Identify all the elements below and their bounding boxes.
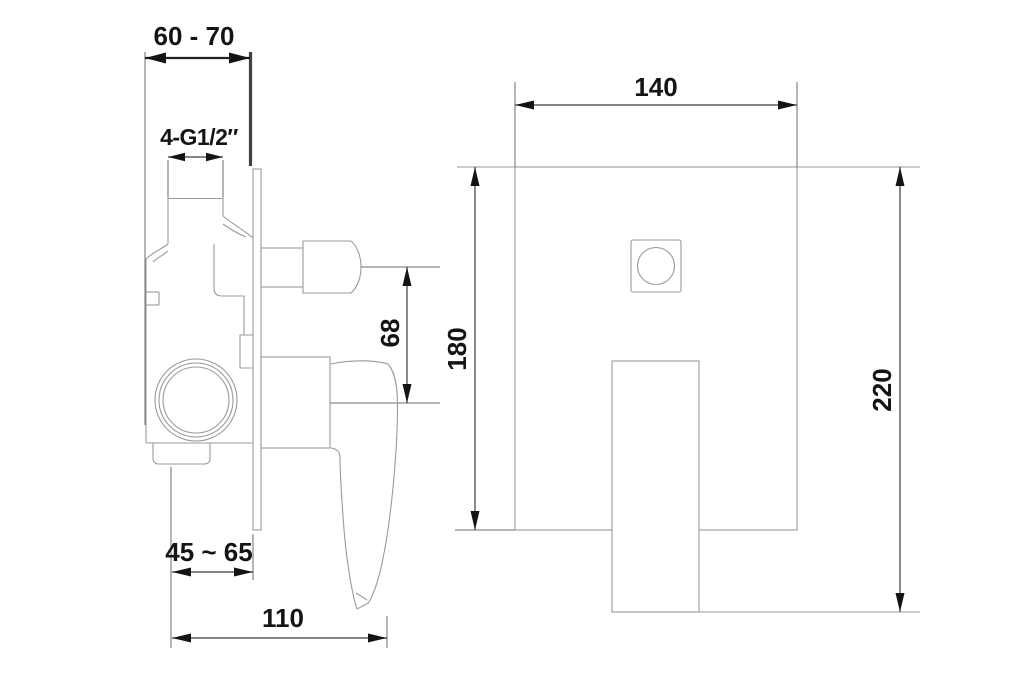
arrowhead bbox=[368, 634, 387, 643]
cartridge-cap-inner bbox=[163, 367, 229, 433]
dim-handle-projection: 110 bbox=[172, 603, 387, 648]
dim-thread: 4-G1/2″ bbox=[160, 124, 238, 197]
body-internal-port bbox=[214, 244, 244, 335]
dim-label-plate-height: 180 bbox=[442, 327, 472, 370]
dim-overall-height: 220 bbox=[867, 167, 905, 612]
handle-lever bbox=[331, 361, 398, 609]
valve-body bbox=[146, 244, 253, 464]
dim-plate-width: 140 bbox=[515, 72, 797, 167]
inlet-pipe bbox=[146, 197, 253, 262]
cartridge-cap-mid bbox=[159, 363, 233, 437]
arrowhead bbox=[403, 267, 412, 286]
dim-label-plate-width: 140 bbox=[634, 72, 677, 102]
diverter-knob-side bbox=[261, 241, 361, 293]
knob-stem bbox=[261, 248, 303, 287]
arrowhead bbox=[229, 53, 250, 64]
casting-curve bbox=[146, 244, 168, 259]
handle-hub bbox=[261, 357, 330, 448]
dim-label-projection: 110 bbox=[262, 603, 304, 633]
dim-label-wall-depth: 60 - 70 bbox=[154, 21, 235, 51]
cartridge-cap-outer bbox=[155, 359, 237, 441]
arrowhead bbox=[206, 153, 223, 161]
arrowhead bbox=[172, 634, 191, 643]
arrowhead bbox=[403, 384, 412, 403]
dim-label-rough-in: 45 ~ 65 bbox=[165, 537, 252, 567]
arrowhead bbox=[168, 153, 185, 161]
dim-rough-in: 45 ~ 65 bbox=[165, 467, 253, 648]
arrowhead bbox=[234, 568, 253, 577]
dim-wall-depth: 60 - 70 bbox=[145, 21, 251, 425]
front-view: 140 180 220 bbox=[442, 72, 920, 612]
arrowhead bbox=[172, 568, 191, 577]
handle-front bbox=[612, 361, 699, 612]
arrowhead bbox=[778, 101, 797, 110]
arrowhead bbox=[471, 167, 480, 186]
arrowhead bbox=[896, 593, 905, 612]
arrowhead bbox=[896, 167, 905, 186]
dim-label-thread: 4-G1/2″ bbox=[160, 124, 238, 150]
lever-tip-facet bbox=[356, 593, 367, 600]
diverter-button-front bbox=[631, 240, 681, 292]
drawing-page: 60 - 70 4-G1/2″ bbox=[0, 0, 1024, 692]
handle-side bbox=[261, 357, 398, 609]
body-fitting bbox=[240, 335, 253, 368]
dim-label-overall-height: 220 bbox=[867, 368, 897, 411]
arrowhead bbox=[145, 53, 166, 64]
arrowhead bbox=[515, 101, 534, 110]
arrowhead bbox=[471, 511, 480, 530]
dim-label-offset: 68 bbox=[375, 319, 405, 348]
technical-drawing-canvas: 60 - 70 4-G1/2″ bbox=[0, 0, 1024, 692]
side-view: 60 - 70 4-G1/2″ bbox=[145, 21, 440, 648]
knob-body bbox=[303, 241, 361, 293]
mounting-plate-side bbox=[253, 169, 261, 530]
body-bottom-tab bbox=[153, 443, 210, 464]
dim-plate-height: 180 bbox=[442, 167, 480, 530]
